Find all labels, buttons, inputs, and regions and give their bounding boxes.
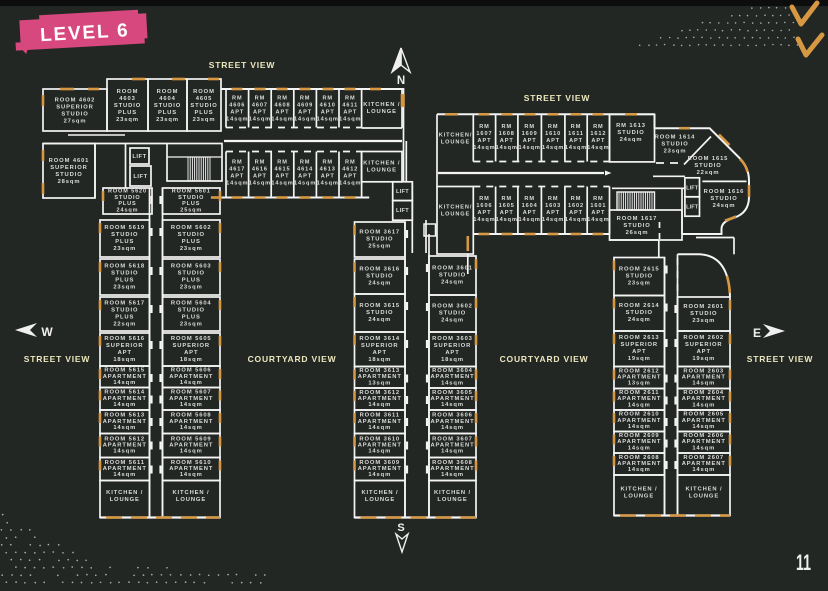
svg-text:ROOM 5609: ROOM 5609 [171, 436, 212, 442]
svg-text:14sqm: 14sqm [441, 402, 464, 408]
svg-text:S: S [397, 522, 404, 534]
svg-text:22sqm: 22sqm [697, 170, 720, 176]
svg-text:APT: APT [546, 210, 560, 216]
svg-text:ROOM: ROOM [193, 89, 215, 95]
svg-text:PLUS: PLUS [182, 315, 201, 321]
svg-text:STUDIO: STUDIO [690, 311, 717, 317]
svg-text:STUDIO: STUDIO [439, 273, 466, 279]
svg-text:14sqm: 14sqm [587, 145, 609, 151]
svg-text:APARTMENT: APARTMENT [169, 466, 213, 472]
svg-text:14sqm: 14sqm [180, 402, 203, 408]
svg-text:LOUNGE: LOUNGE [110, 497, 140, 503]
svg-text:14sqm: 14sqm [628, 445, 651, 451]
svg-text:STREET VIEW: STREET VIEW [24, 354, 91, 364]
svg-text:RM 1613: RM 1613 [616, 123, 646, 129]
svg-text:APT: APT [569, 138, 583, 144]
svg-text:14sqm: 14sqm [587, 217, 609, 223]
svg-text:14sqm: 14sqm [473, 145, 495, 151]
svg-text:APT: APT [230, 110, 244, 116]
svg-text:23sqm: 23sqm [193, 117, 216, 123]
svg-text:14sqm: 14sqm [113, 425, 136, 431]
svg-text:STREET VIEW: STREET VIEW [524, 93, 591, 103]
svg-text:APARTMENT: APARTMENT [169, 374, 213, 380]
svg-text:ROOM 3612: ROOM 3612 [359, 390, 400, 396]
svg-text:APT: APT [321, 174, 335, 180]
svg-text:PLUS: PLUS [182, 201, 200, 207]
svg-text:ROOM 2610: ROOM 2610 [619, 412, 660, 418]
svg-text:ROOM 5615: ROOM 5615 [104, 368, 145, 374]
svg-text:1602: 1602 [568, 203, 584, 209]
svg-text:LIFT: LIFT [686, 186, 699, 192]
svg-text:18sqm: 18sqm [441, 357, 464, 363]
svg-text:ROOM 1614: ROOM 1614 [655, 135, 696, 141]
svg-text:APT: APT [343, 174, 357, 180]
svg-text:ROOM 5610: ROOM 5610 [171, 460, 212, 466]
svg-text:KITCHEN /: KITCHEN / [620, 487, 657, 493]
svg-text:ROOM 2604: ROOM 2604 [683, 390, 724, 396]
svg-text:KITCHEN /: KITCHEN / [363, 102, 400, 108]
svg-text:14sqm: 14sqm [519, 217, 541, 223]
svg-text:APARTMENT: APARTMENT [617, 375, 661, 381]
svg-text:LOUNGE: LOUNGE [624, 494, 654, 500]
svg-text:STUDIO: STUDIO [178, 308, 205, 314]
svg-text:24sqm: 24sqm [117, 207, 139, 213]
svg-text:APT: APT [591, 138, 605, 144]
svg-text:RM: RM [593, 196, 604, 202]
svg-text:N: N [397, 75, 405, 87]
svg-text:1603: 1603 [545, 203, 561, 209]
svg-text:ROOM 3611: ROOM 3611 [360, 413, 400, 419]
svg-text:STUDIO: STUDIO [661, 142, 688, 148]
svg-text:14sqm: 14sqm [294, 117, 316, 123]
svg-text:1612: 1612 [590, 131, 606, 137]
svg-text:1605: 1605 [499, 203, 515, 209]
svg-text:14sqm: 14sqm [180, 449, 203, 455]
svg-text:18sqm: 18sqm [368, 357, 391, 363]
svg-text:4604: 4604 [159, 96, 176, 102]
svg-text:SUPERIOR: SUPERIOR [685, 342, 722, 348]
svg-text:RM: RM [300, 96, 311, 102]
svg-text:PLUS: PLUS [115, 315, 134, 321]
svg-text:27sqm: 27sqm [64, 119, 87, 125]
svg-text:24sqm: 24sqm [368, 317, 391, 323]
svg-text:STUDIO: STUDIO [61, 112, 88, 118]
svg-text:APARTMENT: APARTMENT [358, 419, 402, 425]
svg-text:LOUNGE: LOUNGE [437, 497, 467, 503]
svg-text:19sqm: 19sqm [692, 356, 715, 362]
svg-text:STREET VIEW: STREET VIEW [747, 354, 814, 364]
svg-text:1608: 1608 [499, 131, 515, 137]
svg-text:SUPERIOR: SUPERIOR [434, 343, 471, 349]
svg-text:14sqm: 14sqm [180, 472, 203, 478]
svg-text:STUDIO: STUDIO [366, 274, 393, 280]
svg-text:14sqm: 14sqm [692, 381, 715, 387]
svg-text:PLUS: PLUS [182, 278, 201, 284]
svg-text:19sqm: 19sqm [628, 356, 651, 362]
svg-text:14sqm: 14sqm [441, 449, 464, 455]
svg-text:14sqm: 14sqm [441, 425, 464, 431]
svg-text:14sqm: 14sqm [496, 145, 518, 151]
svg-text:ROOM 1617: ROOM 1617 [617, 216, 658, 222]
svg-text:ROOM 5605: ROOM 5605 [171, 336, 212, 342]
svg-text:24sqm: 24sqm [441, 280, 464, 286]
svg-text:APARTMENT: APARTMENT [430, 443, 474, 449]
svg-text:RM: RM [571, 124, 582, 130]
svg-text:ROOM 2603: ROOM 2603 [683, 368, 724, 374]
svg-text:APT: APT [253, 174, 267, 180]
svg-text:RM: RM [322, 160, 333, 166]
svg-text:1604: 1604 [522, 203, 538, 209]
svg-text:SUPERIOR: SUPERIOR [56, 105, 93, 111]
svg-text:SUPERIOR: SUPERIOR [621, 342, 658, 348]
svg-text:APARTMENT: APARTMENT [103, 396, 147, 402]
svg-text:ROOM 3613: ROOM 3613 [359, 368, 400, 374]
svg-text:RM: RM [322, 96, 333, 102]
svg-text:APT: APT [276, 174, 290, 180]
svg-text:13sqm: 13sqm [628, 381, 651, 387]
svg-text:ROOM 2608: ROOM 2608 [619, 455, 660, 461]
svg-text:APT: APT [697, 349, 711, 355]
svg-text:22sqm: 22sqm [113, 322, 136, 328]
svg-text:STUDIO: STUDIO [190, 103, 217, 109]
svg-text:14sqm: 14sqm [692, 445, 715, 451]
svg-text:APARTMENT: APARTMENT [103, 466, 147, 472]
svg-text:14sqm: 14sqm [317, 117, 339, 123]
svg-text:STUDIO: STUDIO [111, 308, 138, 314]
svg-text:ROOM 3614: ROOM 3614 [359, 336, 400, 342]
svg-text:4610: 4610 [320, 103, 336, 109]
svg-text:RM: RM [502, 196, 513, 202]
svg-text:1609: 1609 [522, 131, 538, 137]
svg-text:14sqm: 14sqm [113, 380, 136, 386]
svg-text:ROOM 3609: ROOM 3609 [359, 460, 400, 466]
svg-text:1607: 1607 [476, 131, 492, 137]
svg-text:RM: RM [300, 160, 311, 166]
svg-text:23sqm: 23sqm [116, 117, 139, 123]
svg-text:23sqm: 23sqm [113, 285, 136, 291]
svg-text:ROOM 4602: ROOM 4602 [55, 98, 96, 104]
svg-text:4614: 4614 [297, 167, 313, 173]
svg-text:KITCHEN /: KITCHEN / [106, 490, 143, 496]
svg-text:ROOM 3610: ROOM 3610 [359, 436, 400, 442]
svg-text:14sqm: 14sqm [565, 145, 587, 151]
svg-text:STREET VIEW: STREET VIEW [209, 60, 276, 70]
svg-text:APARTMENT: APARTMENT [358, 466, 402, 472]
svg-text:ROOM 1616: ROOM 1616 [704, 189, 745, 195]
svg-text:ROOM 5620: ROOM 5620 [108, 189, 147, 195]
svg-text:14sqm: 14sqm [441, 472, 464, 478]
svg-text:LOUNGE: LOUNGE [441, 140, 470, 146]
svg-text:ROOM 3616: ROOM 3616 [359, 267, 400, 273]
svg-text:4616: 4616 [252, 167, 268, 173]
svg-text:4603: 4603 [119, 96, 136, 102]
svg-text:LOUNGE: LOUNGE [367, 109, 397, 115]
svg-text:14sqm: 14sqm [339, 117, 361, 123]
svg-text:PLUS: PLUS [194, 110, 213, 116]
svg-text:14sqm: 14sqm [226, 117, 248, 123]
svg-text:ROOM 3603: ROOM 3603 [432, 336, 473, 342]
svg-text:23sqm: 23sqm [180, 285, 203, 291]
svg-text:ROOM 2605: ROOM 2605 [683, 412, 724, 418]
svg-text:APARTMENT: APARTMENT [358, 443, 402, 449]
svg-text:APARTMENT: APARTMENT [103, 419, 147, 425]
svg-text:ROOM 5608: ROOM 5608 [171, 413, 212, 419]
svg-text:ROOM 3605: ROOM 3605 [432, 390, 473, 396]
svg-text:RM: RM [593, 124, 604, 130]
svg-text:28sqm: 28sqm [58, 179, 81, 185]
svg-text:STUDIO: STUDIO [439, 311, 466, 317]
svg-text:RM: RM [255, 96, 266, 102]
svg-text:LOUNGE: LOUNGE [441, 212, 470, 218]
svg-text:1606: 1606 [476, 203, 492, 209]
svg-text:RM: RM [524, 196, 535, 202]
svg-text:1610: 1610 [545, 131, 561, 137]
svg-text:LIFT: LIFT [132, 154, 146, 160]
svg-text:ROOM 2606: ROOM 2606 [683, 433, 724, 439]
svg-text:STUDIO: STUDIO [694, 163, 721, 169]
svg-text:APARTMENT: APARTMENT [682, 396, 726, 402]
svg-text:14sqm: 14sqm [249, 117, 271, 123]
svg-text:APT: APT [321, 110, 335, 116]
svg-text:14sqm: 14sqm [628, 402, 651, 408]
svg-text:ROOM 5604: ROOM 5604 [171, 301, 212, 307]
svg-text:KITCHEN /: KITCHEN / [172, 490, 209, 496]
svg-text:ROOM 2615: ROOM 2615 [619, 267, 660, 273]
svg-text:APARTMENT: APARTMENT [430, 374, 474, 380]
svg-text:STUDIO: STUDIO [366, 237, 393, 243]
svg-text:4607: 4607 [252, 103, 268, 109]
svg-text:25sqm: 25sqm [180, 207, 202, 213]
svg-text:ROOM 3601: ROOM 3601 [432, 266, 473, 272]
svg-text:RM: RM [524, 124, 535, 130]
svg-text:APARTMENT: APARTMENT [617, 439, 661, 445]
svg-text:4606: 4606 [229, 103, 245, 109]
svg-text:14sqm: 14sqm [271, 181, 293, 187]
svg-text:25sqm: 25sqm [368, 244, 391, 250]
svg-text:STUDIO: STUDIO [710, 196, 737, 202]
svg-text:APT: APT [298, 110, 312, 116]
svg-text:KITCHEN /: KITCHEN / [363, 161, 400, 167]
svg-text:ROOM 1615: ROOM 1615 [688, 156, 729, 162]
svg-text:APARTMENT: APARTMENT [617, 396, 661, 402]
svg-text:APT: APT [253, 110, 267, 116]
svg-text:APARTMENT: APARTMENT [103, 374, 147, 380]
svg-text:APT: APT [230, 174, 244, 180]
svg-text:24sqm: 24sqm [620, 137, 643, 143]
svg-text:14sqm: 14sqm [496, 217, 518, 223]
svg-text:APT: APT [500, 138, 514, 144]
svg-text:SUPERIOR: SUPERIOR [50, 165, 87, 171]
svg-text:24sqm: 24sqm [713, 203, 736, 209]
svg-text:ROOM 5613: ROOM 5613 [104, 413, 145, 419]
svg-text:STUDIO: STUDIO [154, 103, 181, 109]
svg-text:E: E [753, 326, 761, 340]
svg-text:14sqm: 14sqm [317, 181, 339, 187]
svg-text:23sqm: 23sqm [156, 117, 179, 123]
svg-text:14sqm: 14sqm [180, 380, 203, 386]
svg-text:ROOM 5606: ROOM 5606 [171, 368, 212, 374]
svg-text:14sqm: 14sqm [368, 472, 391, 478]
svg-text:APT: APT [373, 350, 387, 356]
svg-text:14sqm: 14sqm [542, 145, 564, 151]
svg-text:14sqm: 14sqm [368, 425, 391, 431]
svg-text:RM: RM [548, 196, 559, 202]
svg-text:14sqm: 14sqm [692, 402, 715, 408]
svg-text:APARTMENT: APARTMENT [103, 443, 147, 449]
svg-text:KITCHEN /: KITCHEN / [361, 490, 398, 496]
svg-text:1611: 1611 [568, 131, 584, 137]
svg-text:APARTMENT: APARTMENT [358, 396, 402, 402]
svg-text:ROOM 3615: ROOM 3615 [359, 303, 400, 309]
svg-text:ROOM 5602: ROOM 5602 [171, 225, 212, 231]
svg-text:23sqm: 23sqm [180, 246, 203, 252]
svg-text:RM: RM [479, 196, 490, 202]
svg-text:LOUNGE: LOUNGE [365, 497, 395, 503]
svg-text:APT: APT [523, 210, 537, 216]
svg-text:23sqm: 23sqm [113, 246, 136, 252]
svg-text:ROOM 5618: ROOM 5618 [104, 264, 145, 270]
svg-text:ROOM 3617: ROOM 3617 [359, 230, 400, 236]
svg-text:13sqm: 13sqm [368, 380, 391, 386]
svg-text:4608: 4608 [274, 103, 290, 109]
svg-text:RM: RM [479, 124, 490, 130]
svg-text:ROOM 2613: ROOM 2613 [619, 335, 660, 341]
svg-text:LIFT: LIFT [396, 208, 409, 214]
svg-text:ROOM 2614: ROOM 2614 [619, 303, 660, 309]
svg-text:14sqm: 14sqm [565, 217, 587, 223]
svg-text:23sqm: 23sqm [692, 318, 715, 324]
svg-text:LIFT: LIFT [396, 189, 409, 195]
svg-text:KITCHEN /: KITCHEN / [434, 490, 471, 496]
svg-text:APT: APT [184, 350, 198, 356]
svg-text:14sqm: 14sqm [249, 181, 271, 187]
svg-text:14sqm: 14sqm [113, 472, 136, 478]
svg-text:14sqm: 14sqm [271, 117, 293, 123]
svg-text:24sqm: 24sqm [441, 318, 464, 324]
svg-text:STUDIO: STUDIO [626, 274, 653, 280]
svg-text:14sqm: 14sqm [519, 145, 541, 151]
svg-text:ROOM 2609: ROOM 2609 [619, 433, 660, 439]
svg-text:ROOM 5601: ROOM 5601 [172, 189, 211, 195]
svg-text:ROOM: ROOM [157, 89, 179, 95]
svg-text:ROOM 2607: ROOM 2607 [683, 455, 724, 461]
svg-text:ROOM 3604: ROOM 3604 [432, 368, 473, 374]
svg-text:PLUS: PLUS [115, 278, 134, 284]
svg-text:ROOM 5619: ROOM 5619 [104, 225, 145, 231]
svg-text:14sqm: 14sqm [368, 402, 391, 408]
svg-text:APARTMENT: APARTMENT [169, 396, 213, 402]
svg-text:APARTMENT: APARTMENT [617, 461, 661, 467]
svg-text:PLUS: PLUS [182, 239, 201, 245]
svg-text:APARTMENT: APARTMENT [169, 419, 213, 425]
svg-text:APT: APT [546, 138, 560, 144]
svg-text:STUDIO: STUDIO [178, 195, 204, 201]
svg-text:23sqm: 23sqm [628, 281, 651, 287]
svg-text:APARTMENT: APARTMENT [617, 418, 661, 424]
svg-text:23sqm: 23sqm [180, 322, 203, 328]
svg-text:14sqm: 14sqm [339, 181, 361, 187]
svg-text:APARTMENT: APARTMENT [682, 439, 726, 445]
svg-text:APT: APT [500, 210, 514, 216]
svg-text:ROOM 3607: ROOM 3607 [432, 436, 473, 442]
svg-text:ROOM 5617: ROOM 5617 [104, 301, 145, 307]
svg-text:APT: APT [632, 349, 646, 355]
svg-text:14sqm: 14sqm [441, 380, 464, 386]
svg-text:STUDIO: STUDIO [111, 271, 138, 277]
svg-text:24sqm: 24sqm [368, 281, 391, 287]
svg-text:LOUNGE: LOUNGE [176, 497, 206, 503]
svg-text:STUDIO: STUDIO [178, 232, 205, 238]
svg-text:SUPERIOR: SUPERIOR [106, 343, 143, 349]
svg-text:APARTMENT: APARTMENT [169, 443, 213, 449]
svg-text:RM: RM [277, 96, 288, 102]
svg-text:14sqm: 14sqm [628, 467, 651, 473]
svg-text:1601: 1601 [590, 203, 606, 209]
svg-text:14sqm: 14sqm [542, 217, 564, 223]
svg-text:14sqm: 14sqm [226, 181, 248, 187]
svg-text:11: 11 [796, 550, 811, 575]
svg-text:APT: APT [118, 350, 132, 356]
svg-text:RM: RM [277, 160, 288, 166]
svg-text:ROOM 5607: ROOM 5607 [171, 390, 212, 396]
svg-text:APT: APT [445, 350, 459, 356]
svg-text:RM: RM [548, 124, 559, 130]
svg-text:W: W [41, 325, 53, 339]
svg-text:APT: APT [569, 210, 583, 216]
svg-text:14sqm: 14sqm [180, 425, 203, 431]
svg-text:PLUS: PLUS [118, 110, 137, 116]
svg-text:ROOM 2611: ROOM 2611 [619, 390, 659, 396]
svg-text:14sqm: 14sqm [628, 424, 651, 430]
svg-text:APT: APT [478, 138, 492, 144]
svg-text:APT: APT [343, 110, 357, 116]
svg-text:PLUS: PLUS [115, 239, 134, 245]
svg-text:RM: RM [345, 96, 356, 102]
svg-text:KITCHEN /: KITCHEN / [685, 487, 722, 493]
svg-text:SUPERIOR: SUPERIOR [361, 343, 398, 349]
svg-text:LOUNGE: LOUNGE [367, 168, 397, 174]
svg-text:APT: APT [276, 110, 290, 116]
svg-text:APT: APT [298, 174, 312, 180]
svg-text:SUPERIOR: SUPERIOR [173, 343, 210, 349]
svg-text:COURTYARD VIEW: COURTYARD VIEW [500, 354, 589, 364]
svg-text:4611: 4611 [342, 103, 358, 109]
svg-text:ROOM 5614: ROOM 5614 [104, 390, 145, 396]
svg-text:4617: 4617 [229, 167, 245, 173]
svg-text:14sqm: 14sqm [692, 467, 715, 473]
svg-text:ROOM 2602: ROOM 2602 [683, 335, 724, 341]
svg-text:4609: 4609 [297, 103, 313, 109]
svg-text:ROOM 3606: ROOM 3606 [432, 413, 473, 419]
svg-text:RM: RM [571, 196, 582, 202]
svg-text:STUDIO: STUDIO [178, 271, 205, 277]
svg-text:ROOM 5616: ROOM 5616 [104, 336, 145, 342]
svg-text:14sqm: 14sqm [692, 424, 715, 430]
svg-text:ROOM 4601: ROOM 4601 [49, 158, 90, 164]
svg-text:18sqm: 18sqm [180, 357, 203, 363]
svg-text:24sqm: 24sqm [628, 317, 651, 323]
svg-text:APARTMENT: APARTMENT [430, 419, 474, 425]
svg-text:18sqm: 18sqm [113, 357, 136, 363]
svg-text:STUDIO: STUDIO [366, 310, 393, 316]
svg-text:APARTMENT: APARTMENT [358, 374, 402, 380]
svg-text:14sqm: 14sqm [113, 449, 136, 455]
svg-text:STUDIO: STUDIO [626, 310, 653, 316]
svg-text:4605: 4605 [196, 96, 213, 102]
svg-text:23sqm: 23sqm [664, 149, 687, 155]
svg-text:APT: APT [478, 210, 492, 216]
svg-text:4612: 4612 [342, 167, 358, 173]
